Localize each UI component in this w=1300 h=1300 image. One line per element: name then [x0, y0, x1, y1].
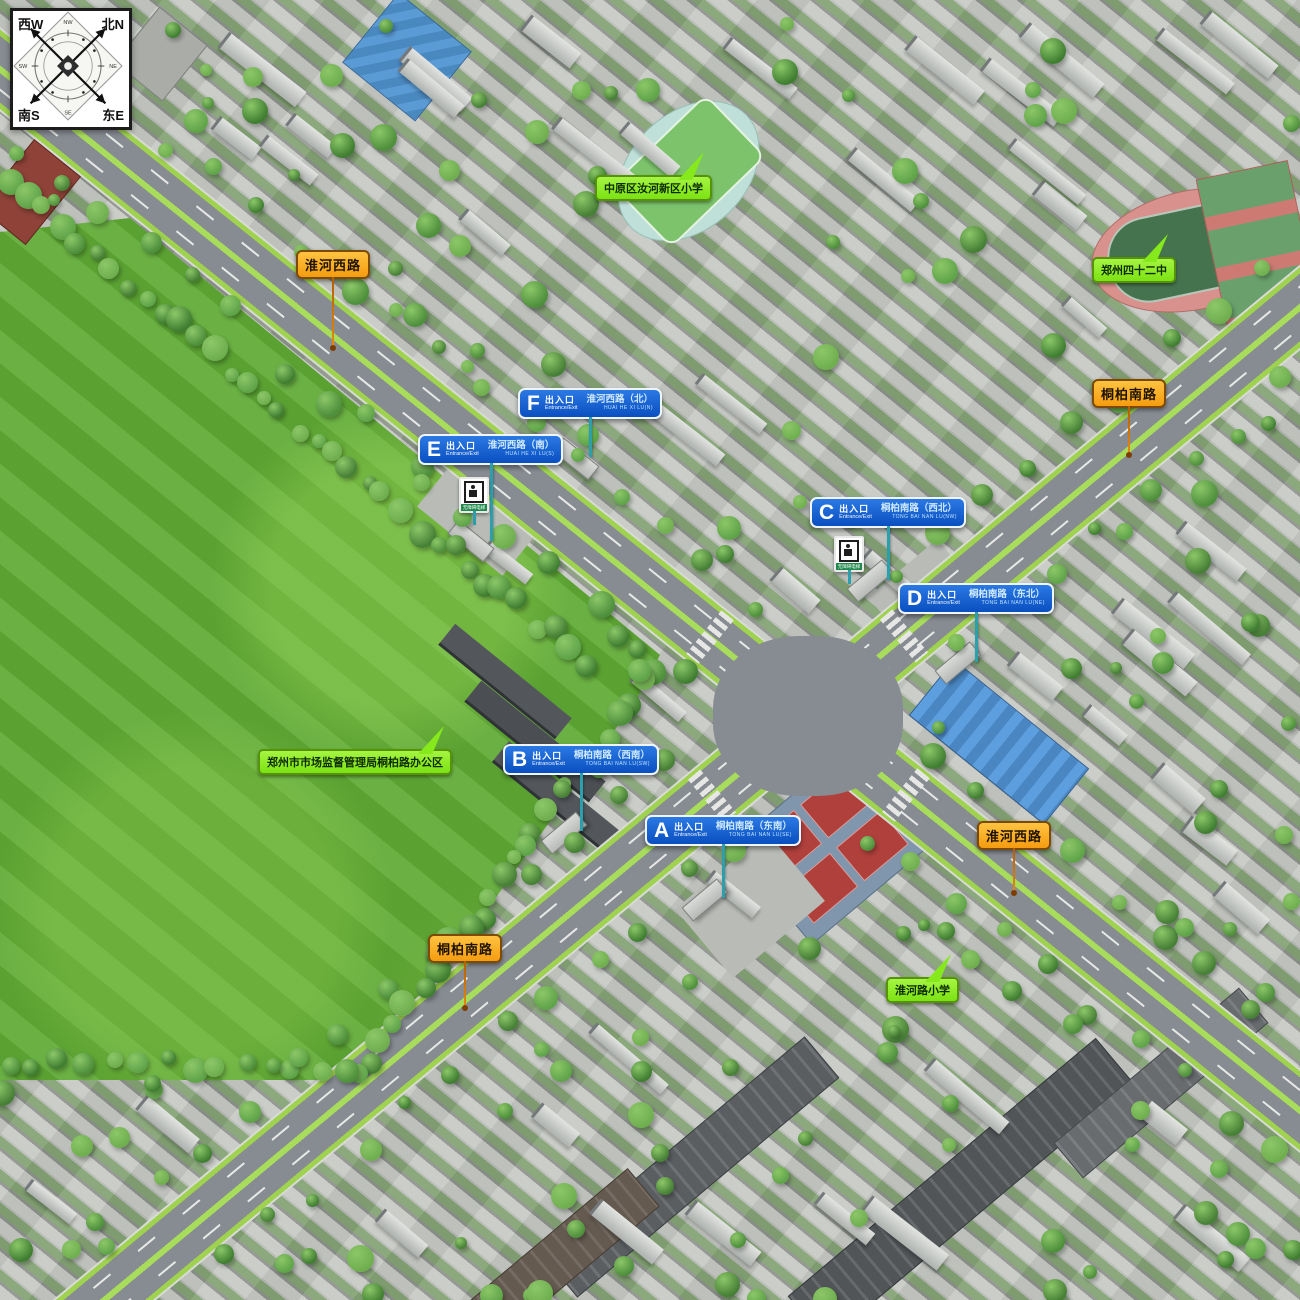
tree	[202, 97, 214, 109]
tree	[71, 1135, 93, 1157]
exit-en: Entrance/Exit	[674, 832, 707, 838]
tree	[1060, 411, 1083, 434]
poi-label-zhongyuan-school: 中原区汝河新区小学	[595, 175, 712, 201]
tree	[1194, 811, 1217, 834]
tree	[1275, 826, 1293, 844]
tree	[214, 1244, 234, 1264]
tree	[571, 448, 585, 462]
tree	[62, 1240, 81, 1259]
tree	[330, 133, 355, 158]
tree	[1261, 1136, 1288, 1163]
tree	[243, 67, 263, 87]
tree	[479, 889, 496, 906]
tree	[1256, 983, 1275, 1002]
tree	[896, 926, 911, 941]
tree	[200, 64, 212, 76]
tree	[388, 261, 403, 276]
tree	[1019, 460, 1036, 477]
label-pin	[1128, 406, 1130, 455]
poi-label-text: 淮河路小学	[895, 985, 950, 997]
tree	[1063, 1014, 1083, 1034]
tree	[498, 1011, 518, 1031]
tree	[553, 780, 571, 798]
tree	[1116, 523, 1133, 540]
tree	[140, 291, 156, 307]
tree	[577, 424, 599, 446]
tree	[257, 391, 271, 405]
tree	[158, 143, 173, 158]
label-pin	[464, 961, 466, 1008]
tree	[260, 1207, 275, 1222]
exit-cn: 出入口	[532, 752, 565, 762]
tree	[1231, 429, 1246, 444]
tree	[717, 516, 741, 540]
tree	[432, 340, 446, 354]
tree	[607, 625, 629, 647]
poi-label-huaihe-school: 淮河路小学	[886, 977, 959, 1003]
tree	[141, 232, 162, 253]
tree	[109, 1127, 130, 1148]
tree	[967, 782, 984, 799]
poi-label-no42-school: 郑州四十二中	[1092, 257, 1176, 283]
tree	[461, 360, 474, 373]
tree	[592, 951, 609, 968]
road-label-text: 桐柏南路	[1101, 387, 1157, 402]
tree	[628, 1102, 654, 1128]
tree	[205, 158, 222, 175]
tree	[913, 193, 929, 209]
tree	[335, 1059, 359, 1083]
exit-cn: 出入口	[674, 823, 707, 833]
tree	[1150, 628, 1166, 644]
tree	[1152, 652, 1174, 674]
tree	[497, 1103, 513, 1119]
tree	[144, 1075, 161, 1092]
tree	[266, 1058, 281, 1073]
exit-letter: A	[654, 820, 669, 841]
tree	[327, 1024, 348, 1045]
sign-pole	[848, 570, 851, 584]
tree	[86, 201, 109, 224]
tree	[892, 158, 918, 184]
tree	[780, 17, 794, 31]
tree	[471, 92, 487, 108]
tree	[1283, 115, 1300, 132]
tree	[306, 1194, 319, 1207]
tree	[607, 700, 633, 726]
tree	[850, 1209, 868, 1227]
tree	[715, 1272, 740, 1297]
exit-sign-b: B 出入口Entrance/Exit 桐柏南路（西南）TONG BAI NAN …	[503, 744, 659, 775]
tree	[1129, 694, 1144, 709]
tree	[1132, 1030, 1150, 1048]
tree	[98, 258, 119, 279]
tree	[220, 295, 241, 316]
tree	[961, 950, 980, 969]
sign-pin	[887, 526, 890, 580]
tree	[555, 634, 581, 660]
tree	[813, 344, 839, 370]
road-label-tongbai-south-n: 桐柏南路	[1092, 379, 1166, 408]
tree	[1125, 1137, 1140, 1152]
exit-sign-f: F 出入口Entrance/Exit 淮河西路（北）HUAI HE XI LU(…	[518, 388, 662, 419]
tree	[932, 258, 958, 284]
tree	[1112, 895, 1127, 910]
tree	[1041, 1229, 1065, 1253]
tree	[877, 1042, 898, 1063]
tree	[798, 1131, 813, 1146]
exit-road-en: HUAI HE XI LU(S)	[488, 452, 555, 458]
exit-en: Entrance/Exit	[532, 761, 565, 767]
tree	[455, 1237, 467, 1249]
elevator-label: 无障碍电梯	[836, 563, 862, 570]
rose-sw-text: SW	[18, 64, 28, 70]
tree	[614, 1256, 634, 1276]
tree	[9, 1238, 33, 1262]
tree	[165, 22, 181, 38]
tree	[937, 922, 955, 940]
tree	[918, 919, 930, 931]
tree	[275, 364, 295, 384]
tree	[748, 602, 763, 617]
label-pin	[1013, 848, 1015, 893]
tree	[793, 495, 807, 509]
tree	[416, 213, 441, 238]
tree	[127, 1052, 148, 1073]
tree	[360, 1139, 382, 1161]
tree	[2, 1057, 20, 1075]
tree	[379, 19, 393, 33]
exit-sign-c: C 出入口Entrance/Exit 桐柏南路（西北）TONG BAI NAN …	[810, 497, 966, 528]
tree	[1223, 922, 1237, 936]
road-intersection	[713, 636, 903, 796]
tree	[730, 1232, 746, 1248]
tree	[948, 634, 965, 651]
tree	[636, 78, 660, 102]
tree	[826, 235, 840, 249]
tree	[1241, 613, 1260, 632]
tree	[1283, 893, 1300, 910]
tree	[48, 194, 60, 206]
tree	[54, 175, 70, 191]
tree	[1245, 1238, 1266, 1259]
tree	[842, 89, 855, 102]
tree	[403, 303, 427, 327]
tree	[292, 425, 309, 442]
tree	[942, 1138, 956, 1152]
tree	[1219, 1111, 1244, 1136]
tree	[1131, 1101, 1150, 1120]
road-label-text: 桐柏南路	[437, 942, 493, 957]
tree	[1191, 480, 1218, 507]
tree	[1140, 479, 1162, 501]
tree	[575, 655, 597, 677]
exit-road-en: TONG BAI NAN LU(NE)	[969, 601, 1045, 607]
tree	[942, 1095, 959, 1112]
exit-letter: D	[907, 588, 922, 609]
tree	[320, 64, 343, 87]
tree	[971, 484, 993, 506]
tree	[567, 1220, 585, 1238]
exit-letter: E	[427, 439, 441, 460]
rose-nw-text: NW	[63, 20, 73, 26]
tree	[525, 120, 549, 144]
elevator-icon	[464, 481, 484, 503]
tree	[301, 1248, 317, 1264]
tree	[1041, 333, 1066, 358]
tree	[614, 489, 630, 505]
tree	[1038, 954, 1058, 974]
road-label-text: 淮河西路	[305, 258, 361, 273]
compass-east: 东E	[102, 105, 124, 124]
tree	[564, 832, 585, 853]
tree	[413, 474, 430, 491]
exit-road-en: TONG BAI NAN LU(SE)	[716, 833, 792, 839]
tree	[242, 98, 268, 124]
tree	[239, 1101, 261, 1123]
sign-pin	[722, 844, 725, 898]
tree	[22, 1059, 39, 1076]
tree	[901, 269, 915, 283]
road-label-tongbai-south-s: 桐柏南路	[428, 934, 502, 963]
tree	[505, 587, 527, 609]
tree	[237, 372, 258, 393]
tree	[920, 743, 946, 769]
tree	[604, 86, 618, 100]
tree	[449, 235, 471, 257]
tree	[1060, 838, 1085, 863]
tree	[1051, 98, 1077, 124]
tree	[682, 974, 698, 990]
tree	[1194, 1201, 1218, 1225]
tree	[1163, 329, 1181, 347]
tree	[470, 343, 485, 358]
tree	[1024, 104, 1047, 127]
exit-sign-a: A 出入口Entrance/Exit 桐柏南路（东南）TONG BAI NAN …	[645, 815, 801, 846]
tree	[184, 109, 208, 133]
tree	[1254, 260, 1270, 276]
exit-cn: 出入口	[545, 396, 578, 406]
exit-cn: 出入口	[446, 442, 479, 452]
tree	[772, 1167, 789, 1184]
tree	[268, 402, 284, 418]
exit-en: Entrance/Exit	[839, 514, 872, 520]
road-label-huaihe-west-e: 淮河西路	[977, 821, 1051, 850]
tree	[441, 1066, 459, 1084]
tree	[610, 786, 628, 804]
tree	[185, 267, 200, 282]
tree	[388, 498, 413, 523]
exit-en: Entrance/Exit	[446, 451, 479, 457]
tree	[46, 1048, 67, 1069]
tree	[1043, 1279, 1067, 1300]
rose-se-text: SE	[64, 110, 72, 116]
tree	[537, 551, 560, 574]
tree	[1189, 451, 1204, 466]
tree	[1040, 38, 1066, 64]
tree	[628, 923, 647, 942]
tree	[248, 197, 264, 213]
road-label-huaihe-west-nw: 淮河西路	[296, 250, 370, 279]
tree	[316, 391, 342, 417]
tree	[446, 535, 466, 555]
tree	[1281, 716, 1296, 731]
tree	[798, 937, 821, 960]
tree	[1210, 1160, 1228, 1178]
tree	[1083, 1265, 1097, 1279]
tree	[416, 978, 436, 998]
tree	[1192, 951, 1216, 975]
tree	[551, 1183, 577, 1209]
tree	[1088, 522, 1101, 535]
tree	[1178, 1063, 1192, 1077]
tree	[370, 124, 397, 151]
tree	[772, 59, 798, 85]
exit-letter: B	[512, 749, 527, 770]
tree	[86, 1213, 104, 1231]
tree	[342, 278, 369, 305]
tree	[1047, 564, 1067, 584]
tree	[398, 1096, 411, 1109]
exit-en: Entrance/Exit	[927, 600, 960, 606]
compass-north: 北N	[102, 14, 124, 33]
tree	[289, 1048, 308, 1067]
tree	[628, 659, 651, 682]
sign-pole	[473, 511, 476, 525]
tree	[932, 721, 945, 734]
tree	[628, 640, 646, 658]
tree	[64, 233, 85, 254]
tree	[1217, 1251, 1234, 1268]
rose-ne-text: NE	[109, 64, 117, 70]
tree	[946, 893, 967, 914]
exit-en: Entrance/Exit	[545, 405, 578, 411]
tree	[1110, 662, 1122, 674]
tree	[1002, 981, 1022, 1001]
tree	[389, 303, 403, 317]
sign-pin	[580, 773, 583, 831]
tree	[120, 280, 136, 296]
tree	[491, 524, 516, 549]
compass-west: 西W	[18, 14, 43, 33]
tree	[997, 922, 1012, 937]
city-3d-map: 淮河西路 桐柏南路 淮河西路 桐柏南路 中原区汝河新区小学 郑州四十二中 郑州市…	[0, 0, 1300, 1300]
tree	[439, 160, 460, 181]
tree	[72, 1053, 94, 1075]
tree	[275, 1254, 294, 1273]
tree	[960, 226, 987, 253]
tree	[631, 1061, 652, 1082]
tree	[365, 1028, 390, 1053]
tree	[572, 81, 591, 100]
tree	[313, 1062, 332, 1081]
tree	[154, 1170, 169, 1185]
sign-pin	[490, 463, 493, 541]
tree	[860, 836, 875, 851]
tree	[657, 517, 674, 534]
tree	[347, 1245, 374, 1272]
tree	[673, 659, 698, 684]
poi-label-gov-office: 郑州市市场监督管理局桐柏路办公区	[258, 749, 452, 775]
tree	[389, 990, 415, 1016]
tree	[632, 1029, 649, 1046]
tree	[656, 1177, 674, 1195]
exit-cn: 出入口	[839, 505, 872, 515]
tree	[362, 1283, 384, 1300]
tree	[782, 421, 801, 440]
tree	[98, 1238, 115, 1255]
tree	[1261, 416, 1276, 431]
elevator-label: 无障碍电梯	[461, 504, 487, 511]
tree	[521, 864, 542, 885]
tree	[722, 1059, 739, 1076]
exit-cn: 出入口	[927, 591, 960, 601]
tree	[161, 1050, 176, 1065]
tree	[480, 1284, 503, 1300]
tree	[107, 1052, 123, 1068]
sign-pin	[975, 612, 978, 662]
tree	[204, 1057, 224, 1077]
tree	[1206, 298, 1232, 324]
exit-letter: F	[527, 393, 540, 414]
elevator-sign-c: 无障碍电梯	[834, 536, 864, 572]
tree	[288, 169, 300, 181]
tree	[1210, 780, 1228, 798]
tree	[521, 281, 548, 308]
tree	[691, 549, 713, 571]
tree	[9, 146, 24, 161]
tree	[1283, 1240, 1300, 1260]
tree	[193, 1144, 212, 1163]
compass: NW NE SW SE 西W 北N 南S 东E	[10, 8, 132, 130]
exit-sign-d: D 出入口Entrance/Exit 桐柏南路（东北）TONG BAI NAN …	[898, 583, 1054, 614]
poi-label-text: 郑州市市场监督管理局桐柏路办公区	[267, 757, 443, 769]
tree	[90, 245, 105, 260]
tree	[527, 1280, 553, 1300]
tree	[473, 379, 490, 396]
label-pin	[332, 277, 334, 348]
tree	[1025, 82, 1041, 98]
tree	[357, 404, 375, 422]
tree	[534, 1042, 549, 1057]
tree	[492, 862, 517, 887]
tree	[1061, 658, 1082, 679]
tree	[431, 537, 447, 553]
tree	[550, 1060, 572, 1082]
elevator-sign-e: 无障碍电梯	[459, 477, 489, 513]
tree	[534, 798, 557, 821]
tree	[1185, 548, 1211, 574]
tree	[651, 1144, 669, 1162]
tree	[901, 852, 920, 871]
tree	[1269, 366, 1291, 388]
poi-label-text: 郑州四十二中	[1101, 265, 1167, 277]
compass-south: 南S	[18, 105, 40, 124]
tree	[534, 986, 558, 1010]
tree	[681, 860, 698, 877]
tree	[239, 1054, 256, 1071]
tree	[716, 545, 734, 563]
exit-letter: C	[819, 502, 834, 523]
poi-label-text: 中原区汝河新区小学	[604, 183, 703, 195]
tree	[369, 481, 389, 501]
tree	[1241, 1000, 1260, 1019]
exit-sign-e: E 出入口Entrance/Exit 淮河西路（南）HUAI HE XI LU(…	[418, 434, 563, 465]
road-label-text: 淮河西路	[986, 829, 1042, 844]
sign-pin	[589, 417, 592, 457]
exit-road-en: HUAI HE XI LU(N)	[587, 406, 654, 412]
tree	[890, 570, 903, 583]
